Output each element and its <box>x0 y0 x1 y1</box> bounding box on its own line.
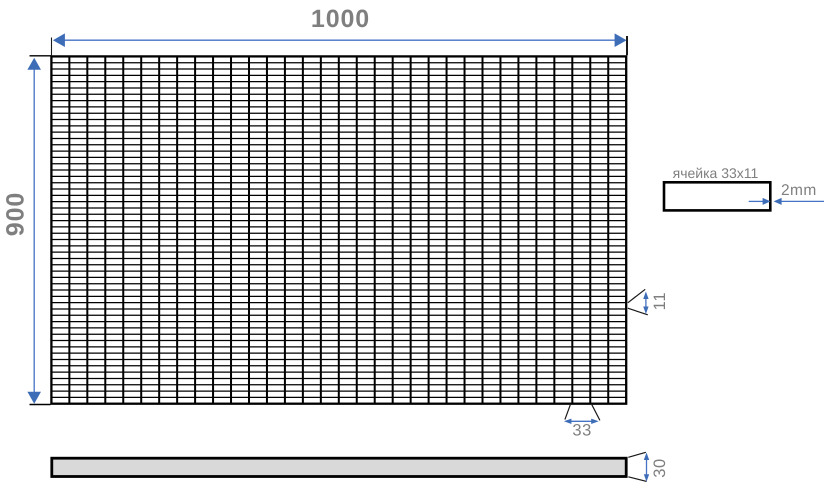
svg-text:ячейка 33x11: ячейка 33x11 <box>673 165 759 181</box>
svg-text:1000: 1000 <box>311 5 370 33</box>
svg-text:30: 30 <box>651 458 669 478</box>
svg-text:33: 33 <box>572 422 592 440</box>
svg-text:11: 11 <box>651 292 669 311</box>
svg-text:2mm: 2mm <box>781 182 817 199</box>
svg-text:900: 900 <box>2 192 30 236</box>
